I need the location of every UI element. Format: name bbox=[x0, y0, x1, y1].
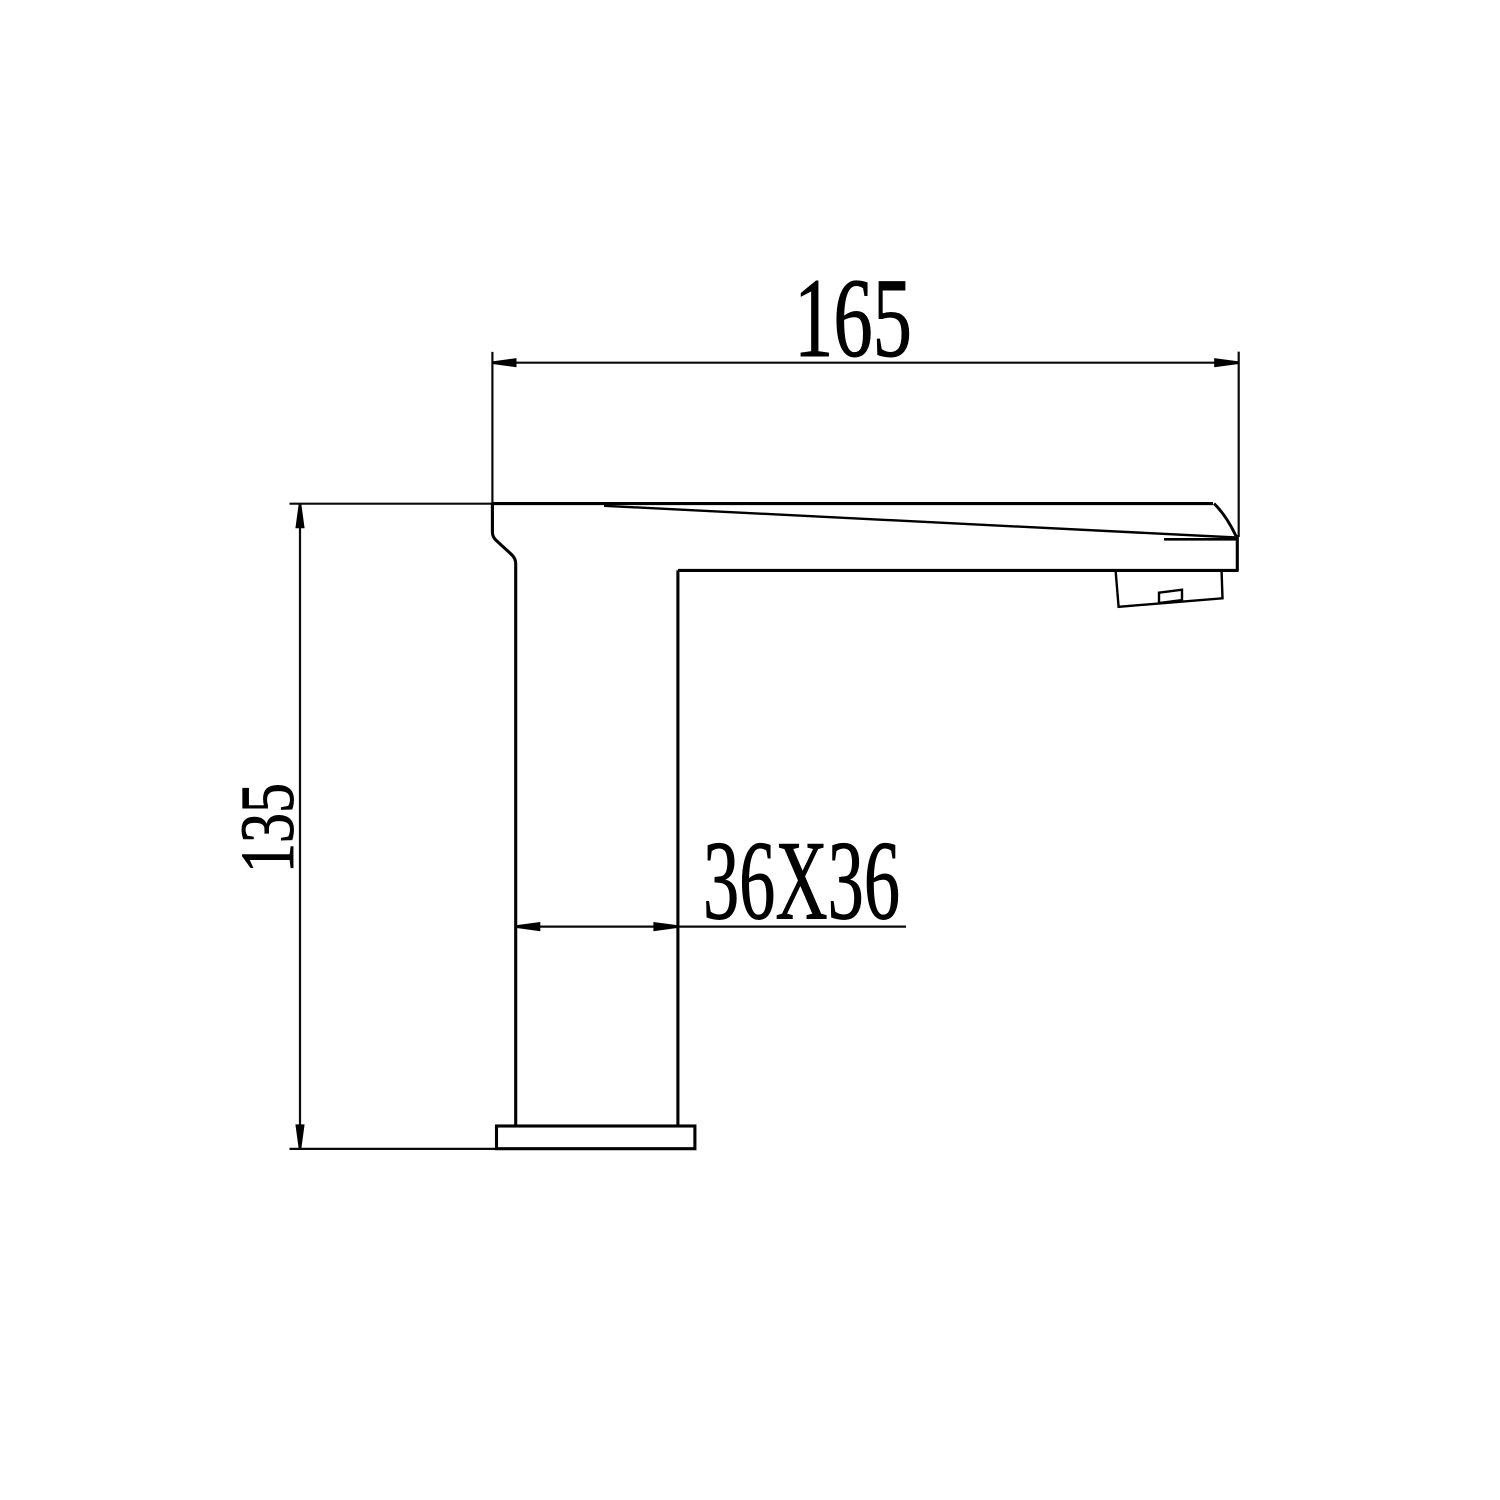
svg-text:36X36: 36X36 bbox=[703, 819, 900, 944]
svg-text:165: 165 bbox=[794, 256, 912, 381]
svg-text:135: 135 bbox=[226, 783, 310, 873]
